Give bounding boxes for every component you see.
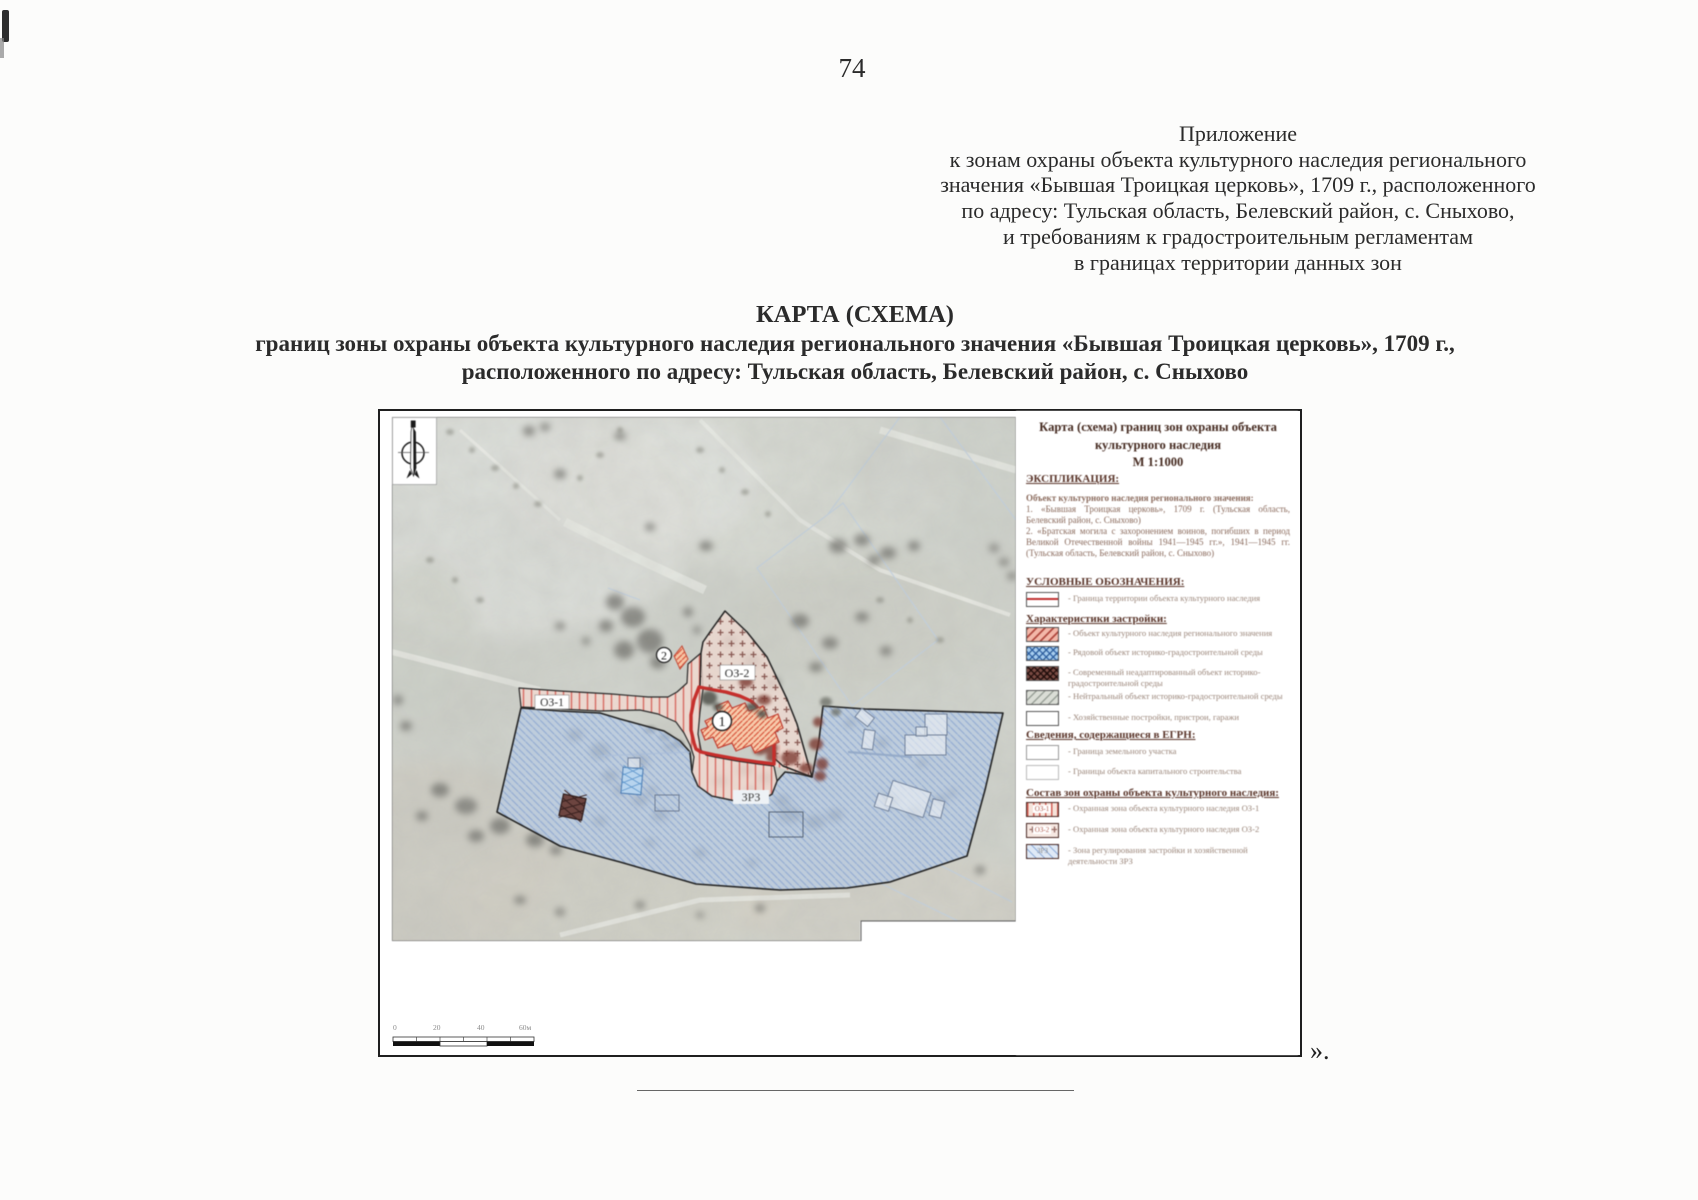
svg-text:ЗРЗ: ЗРЗ: [742, 790, 761, 804]
svg-text:0: 0: [393, 1023, 397, 1032]
svg-text:60м: 60м: [519, 1023, 532, 1032]
svg-text:20: 20: [433, 1023, 441, 1032]
svg-text:ОЗ-1: ОЗ-1: [540, 697, 564, 709]
svg-text:40: 40: [477, 1023, 485, 1032]
svg-text:ОЗ-2: ОЗ-2: [725, 666, 750, 680]
svg-text:1: 1: [719, 715, 726, 730]
svg-text:2: 2: [661, 649, 667, 663]
